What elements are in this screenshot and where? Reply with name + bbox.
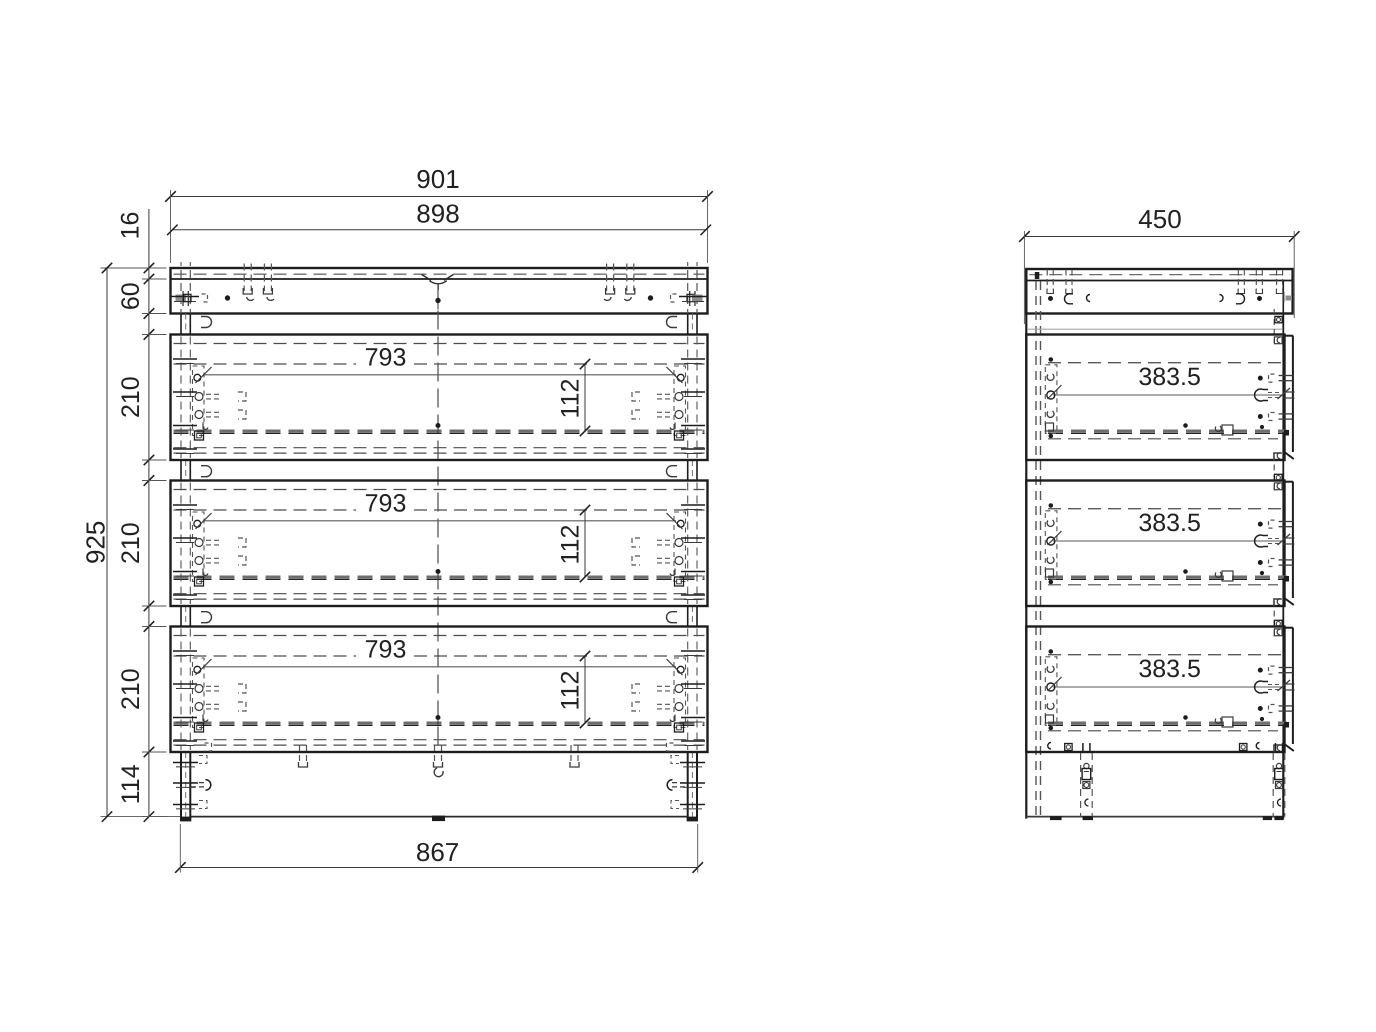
- svg-text:112: 112: [556, 525, 584, 565]
- svg-text:112: 112: [556, 379, 584, 419]
- svg-text:383.5: 383.5: [1138, 509, 1201, 537]
- svg-text:210: 210: [117, 376, 145, 418]
- svg-text:867: 867: [416, 837, 459, 867]
- svg-text:793: 793: [365, 489, 407, 517]
- svg-text:450: 450: [1138, 204, 1181, 234]
- svg-text:210: 210: [117, 668, 145, 710]
- svg-text:210: 210: [117, 522, 145, 564]
- svg-text:793: 793: [365, 635, 407, 663]
- svg-text:383.5: 383.5: [1138, 363, 1201, 391]
- svg-text:793: 793: [365, 343, 407, 371]
- svg-text:901: 901: [416, 164, 459, 194]
- svg-text:16: 16: [117, 212, 145, 240]
- svg-text:925: 925: [81, 521, 111, 564]
- svg-text:114: 114: [117, 764, 145, 804]
- svg-text:112: 112: [556, 671, 584, 711]
- svg-text:60: 60: [117, 282, 145, 310]
- svg-text:898: 898: [416, 198, 459, 228]
- svg-text:383.5: 383.5: [1138, 655, 1201, 683]
